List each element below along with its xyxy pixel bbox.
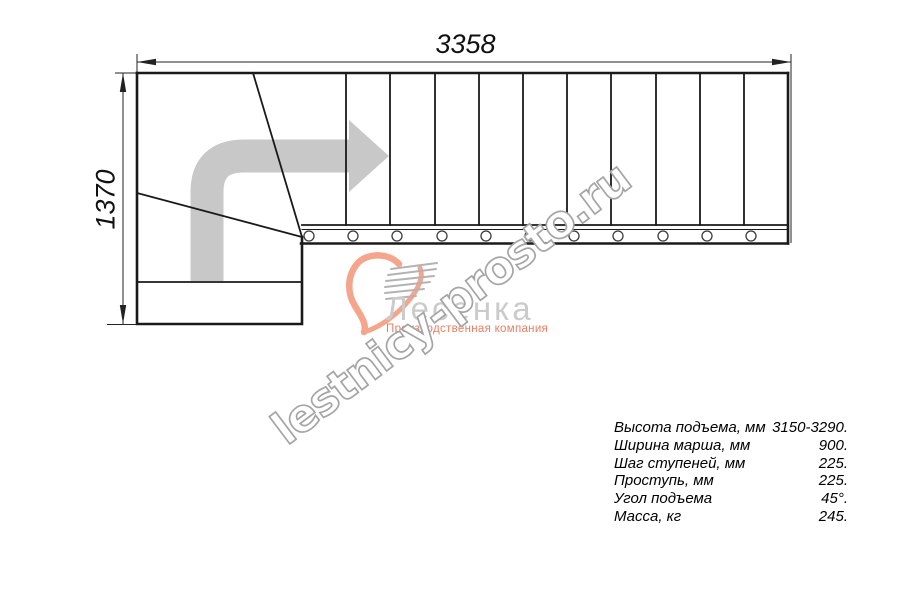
spec-row: Угол подъема 45°.: [614, 490, 848, 508]
spec-label: Ширина марша, мм: [614, 437, 750, 455]
dimension-height-label: 1370: [91, 150, 122, 250]
spec-label: Угол подъема: [614, 490, 712, 508]
spec-label: Проступь, мм: [614, 472, 714, 490]
spec-value: 225.: [819, 455, 848, 473]
page: 3358 1370 Лесенка Производственная компа…: [0, 0, 900, 600]
spec-value: 3150-3290.: [772, 419, 848, 437]
spec-table: Высота подъема, мм 3150-3290. Ширина мар…: [614, 419, 848, 526]
dimension-width-label: 3358: [408, 29, 523, 60]
spec-value: 900.: [819, 437, 848, 455]
spec-value: 225.: [819, 472, 848, 490]
spec-label: Шаг ступеней, мм: [614, 455, 745, 473]
spec-value: 245.: [819, 508, 848, 526]
spec-row: Ширина марша, мм 900.: [614, 437, 848, 455]
spec-row: Масса, кг 245.: [614, 508, 848, 526]
spec-row: Высота подъема, мм 3150-3290.: [614, 419, 848, 437]
spec-row: Проступь, мм 225.: [614, 472, 848, 490]
spec-value: 45°.: [821, 490, 848, 508]
spec-row: Шаг ступеней, мм 225.: [614, 455, 848, 473]
spec-label: Масса, кг: [614, 508, 681, 526]
spec-label: Высота подъема, мм: [614, 419, 766, 437]
